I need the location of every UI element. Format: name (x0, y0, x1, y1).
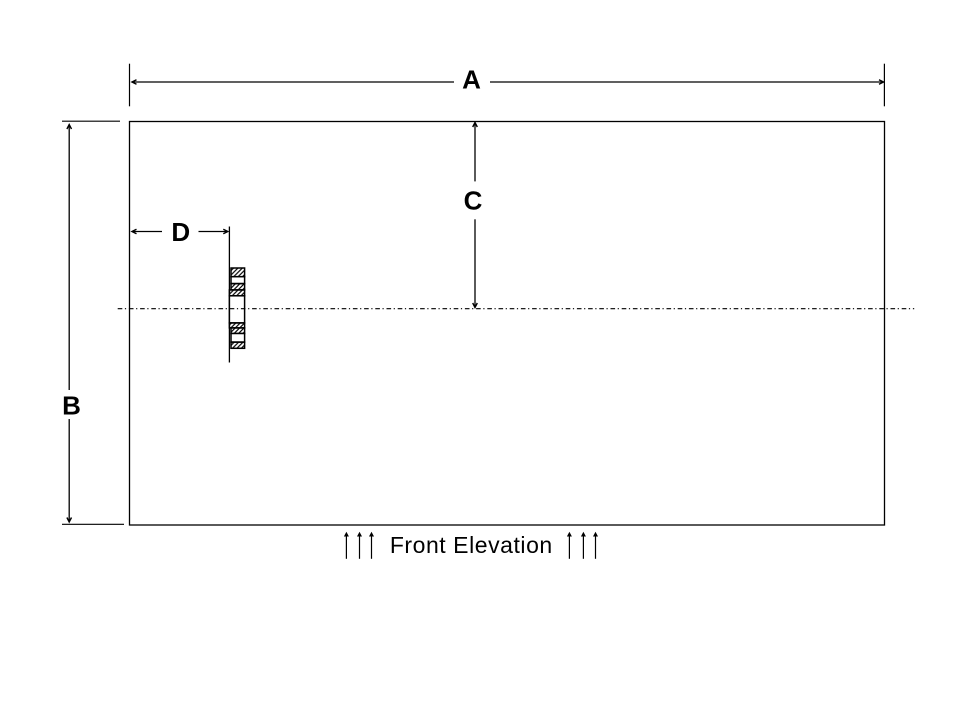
svg-text:D: D (171, 217, 190, 247)
svg-text:Front Elevation: Front Elevation (390, 532, 553, 558)
svg-text:A: A (462, 65, 481, 95)
svg-text:B: B (62, 391, 81, 421)
svg-text:C: C (464, 186, 483, 216)
